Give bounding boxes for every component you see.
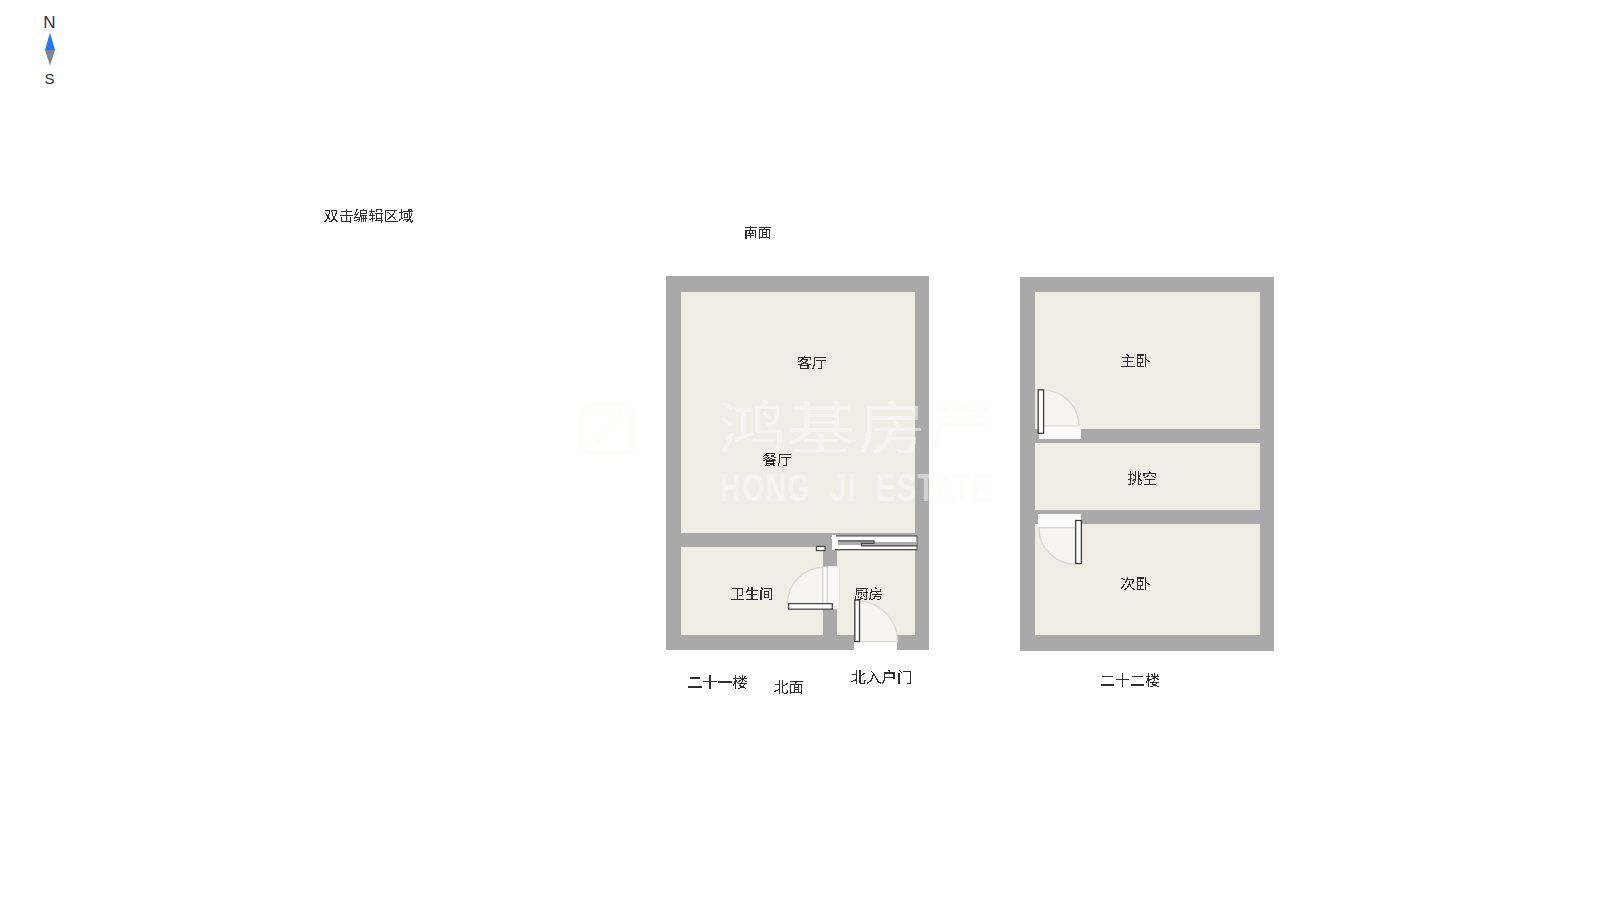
svg-text:HONG JI ESTATE: HONG JI ESTATE [720, 465, 993, 509]
svg-text:S: S [44, 70, 54, 87]
svg-text:N: N [43, 13, 55, 32]
